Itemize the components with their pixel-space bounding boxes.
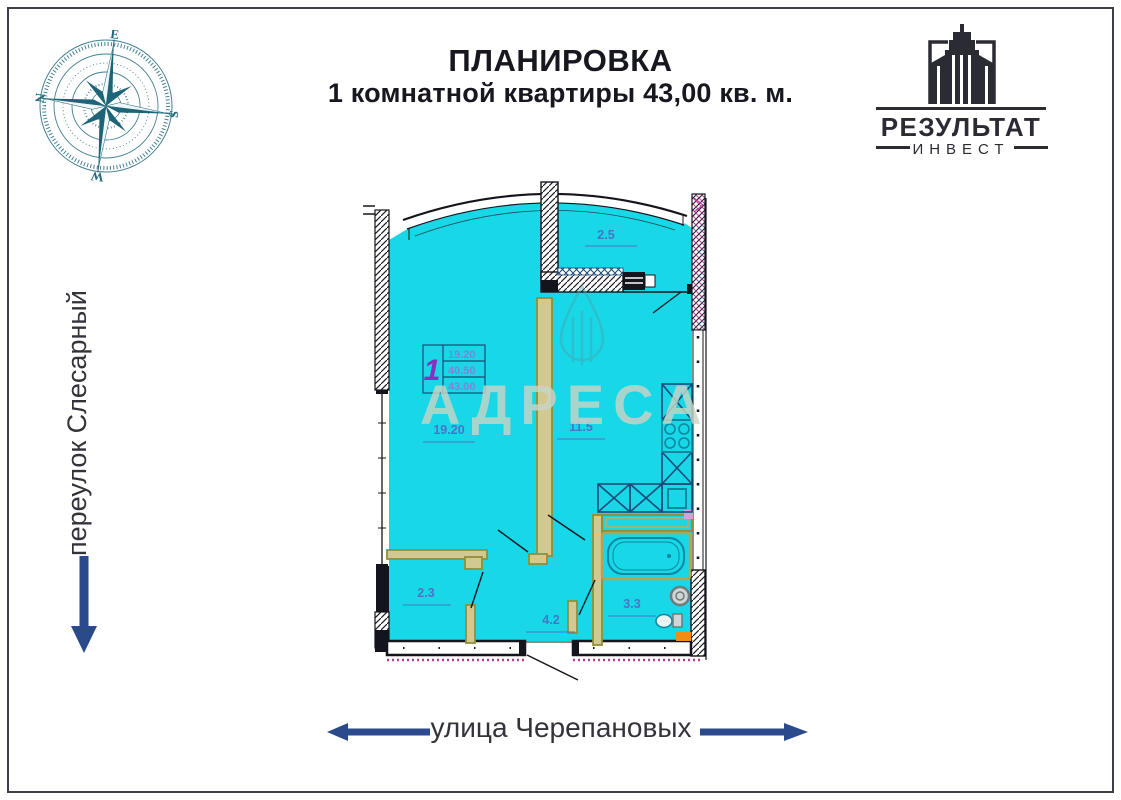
wall-left-top: [375, 210, 389, 390]
room-label-closet: 2.3: [417, 586, 434, 600]
info-area-no-balcony: 40.50: [448, 365, 476, 377]
entrance-door-swing: [527, 655, 578, 680]
wall-right-top: [692, 194, 705, 330]
street-arrow-right: [698, 722, 810, 742]
apartment-number: 1: [424, 354, 441, 387]
compass-letter-e: E: [110, 30, 120, 42]
wall-left-mid: [376, 566, 389, 612]
bathroom-sink: [671, 587, 689, 605]
info-living-area: 19.20: [448, 349, 476, 361]
wall-bottom-left: [387, 641, 525, 655]
compass-letter-s: S: [166, 110, 180, 119]
wall-right-bottom: [691, 570, 705, 656]
room-label-balcony: 2.5: [597, 228, 614, 242]
developer-logo: РЕЗУЛЬТАТ ИНВЕСТ: [868, 22, 1058, 164]
wall-balcony-vertical: [541, 182, 558, 282]
street-arrow-down: [70, 556, 98, 656]
orange-marker: [676, 632, 691, 641]
street-label-bottom: улица Черепановых: [430, 712, 692, 744]
room-label-living: 19.20: [433, 423, 464, 437]
apartment-floor-plan: 1 19.20 40.50 43.00 2.5 19.20 11.5 2.3 4…: [363, 168, 713, 693]
toilet: [656, 615, 672, 628]
kitchen-vent-block: [623, 272, 645, 290]
compass-letter-w: W: [90, 169, 105, 182]
room-label-kitchen: 11.5: [569, 420, 593, 434]
room-label-bathroom: 3.3: [623, 597, 640, 611]
logo-name: РЕЗУЛЬТАТ: [881, 112, 1042, 142]
floor-plan-poster: E S W N ПЛАНИРОВКА 1 комнатной квартиры …: [0, 0, 1121, 800]
info-total-area: 43.00: [448, 381, 476, 393]
street-arrow-left: [326, 722, 432, 742]
logo-subname: ИНВЕСТ: [912, 141, 1009, 158]
wall-bottom-right: [573, 641, 691, 655]
room-label-hallway: 4.2: [542, 613, 559, 627]
street-label-left: переулок Слесарный: [62, 294, 93, 556]
